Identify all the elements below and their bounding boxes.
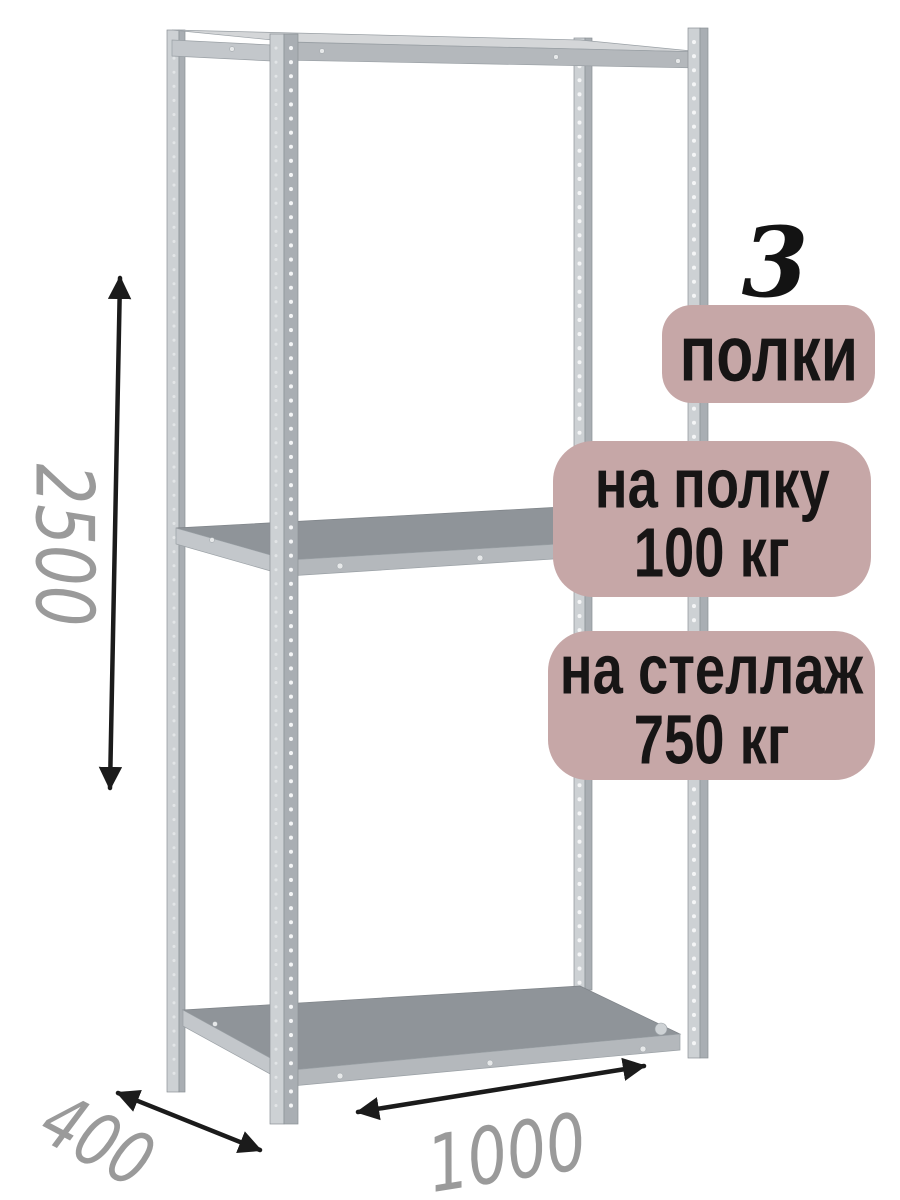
per-shelf-capacity-line2: 100 кг (634, 517, 790, 590)
back-left-post (167, 30, 185, 1092)
shelf-count-badge-label: полки (679, 313, 857, 395)
top-shelf (172, 30, 702, 68)
height-dimension-label: 2500 (18, 464, 111, 627)
per-shelf-capacity-badge: на полку 100 кг (553, 441, 871, 597)
product-dimension-image: 2500 400 1000 3 полки на полку 100 кг на… (0, 0, 900, 1200)
front-left-post (270, 34, 298, 1124)
shelving-rack-illustration (0, 0, 900, 1200)
shelf-count-badge: полки (662, 305, 875, 403)
height-dimension-arrow (110, 278, 120, 788)
shelf-count-number: 3 (742, 215, 809, 311)
per-rack-capacity-badge: на стеллаж 750 кг (548, 631, 875, 780)
per-rack-capacity-line2: 750 кг (634, 704, 790, 777)
per-rack-capacity-line1: на стеллаж (560, 635, 863, 708)
per-shelf-capacity-line1: на полку (595, 448, 830, 521)
